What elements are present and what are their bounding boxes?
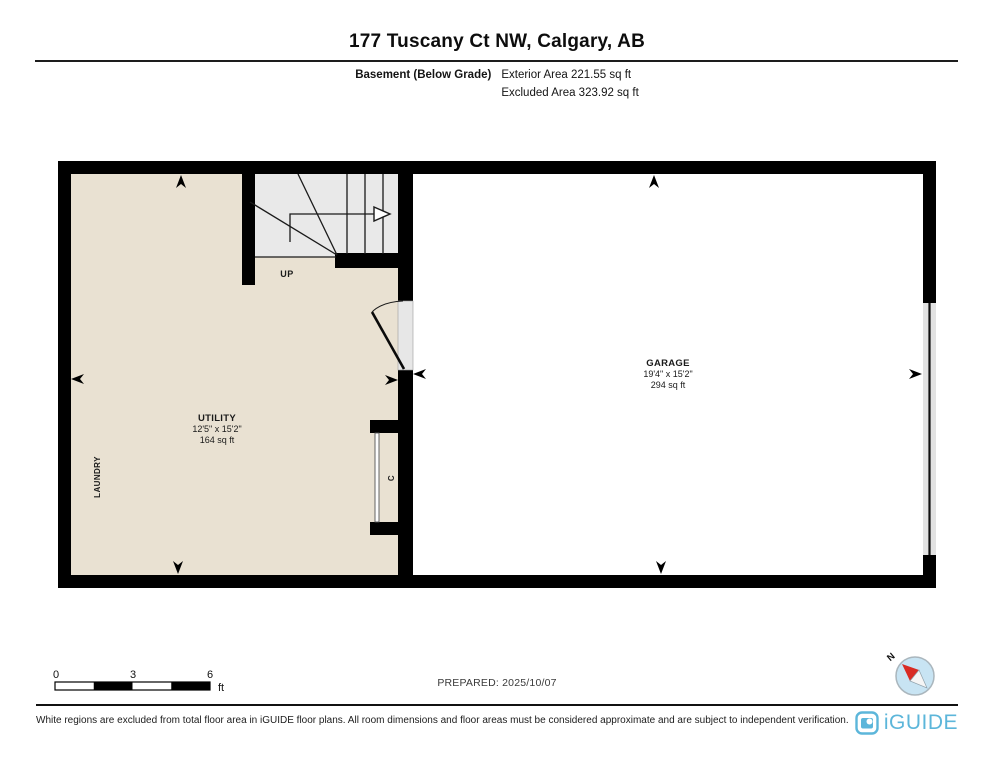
floorplan-page: 177 Tuscany Ct NW, Calgary, AB Basement … bbox=[0, 0, 994, 768]
room-dimensions: 19'4" x 15'2" bbox=[643, 369, 692, 379]
scale-unit: ft bbox=[218, 682, 224, 694]
stair-side-wall bbox=[242, 174, 255, 285]
compass-icon: N bbox=[885, 651, 934, 695]
prepared-date: PREPARED: 2025/10/07 bbox=[437, 677, 556, 689]
up-label: UP bbox=[280, 269, 294, 279]
room-dimensions: 12'5" x 15'2" bbox=[192, 424, 241, 434]
floor-summary: Basement (Below Grade) Exterior Area 221… bbox=[0, 66, 994, 102]
scale-bar: 0 3 6 ft bbox=[53, 669, 224, 694]
north-label: N bbox=[885, 651, 897, 664]
closet-wall-bottom bbox=[370, 522, 413, 535]
page-title: 177 Tuscany Ct NW, Calgary, AB bbox=[0, 31, 994, 53]
title-divider bbox=[35, 60, 958, 62]
laundry-label: LAUNDRY bbox=[93, 456, 102, 498]
footer: White regions are excluded from total fl… bbox=[36, 704, 958, 735]
room-name: GARAGE bbox=[646, 358, 690, 369]
floor-label: Basement (Below Grade) bbox=[355, 66, 491, 84]
floorplan-drawing: UTILITY 12'5" x 15'2" 164 sq ft GARAGE 1… bbox=[0, 150, 994, 700]
iguide-logo: iGUIDE bbox=[855, 711, 958, 735]
scale-tick: 6 bbox=[207, 669, 213, 681]
room-area: 294 sq ft bbox=[651, 380, 686, 390]
scale-bar-segment bbox=[171, 682, 210, 690]
scale-tick: 0 bbox=[53, 669, 59, 681]
excluded-area-text: Excluded Area 323.92 sq ft bbox=[501, 84, 638, 102]
room-area: 164 sq ft bbox=[200, 435, 235, 445]
scale-bar-segment bbox=[94, 682, 133, 690]
closet-wall-top bbox=[370, 420, 413, 433]
disclaimer-text: White regions are excluded from total fl… bbox=[36, 711, 849, 726]
iguide-logo-icon bbox=[855, 711, 879, 735]
stair-bottom-wall bbox=[335, 253, 413, 268]
scale-tick: 3 bbox=[130, 669, 136, 681]
closet-label: C bbox=[387, 475, 396, 481]
room-name: UTILITY bbox=[198, 413, 236, 424]
iguide-logo-text: iGUIDE bbox=[884, 711, 958, 735]
closet-door bbox=[375, 433, 379, 522]
door-opening bbox=[398, 301, 413, 370]
exterior-area-text: Exterior Area 221.55 sq ft bbox=[501, 66, 638, 84]
